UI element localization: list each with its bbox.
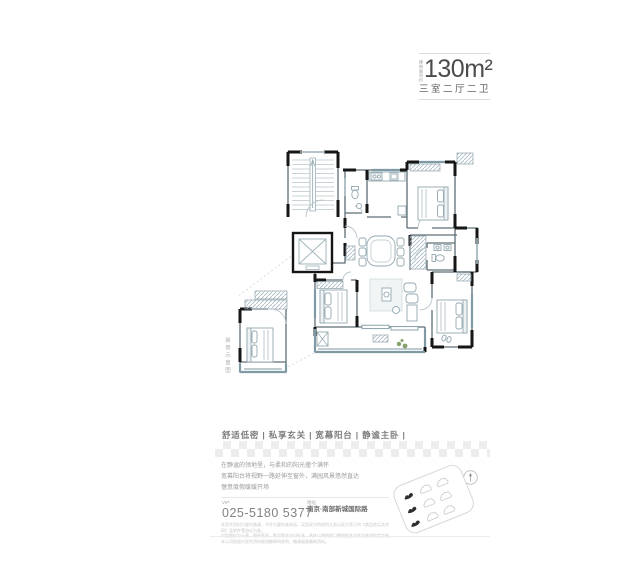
plant-icon xyxy=(397,339,408,348)
living-room-furniture xyxy=(370,279,418,321)
detail-annotation: 装修示意图 xyxy=(223,337,231,381)
toilet-icon xyxy=(432,245,451,262)
bed-icon xyxy=(247,328,273,362)
header-rule-top xyxy=(419,53,490,54)
bed-icon xyxy=(418,187,448,220)
description-line: 宽幕阳台将视野一路延伸至窗外，满园风景悠然直达 xyxy=(221,472,359,483)
slippers-icon xyxy=(441,334,452,343)
rooms-label: 三室二厅二卫 xyxy=(419,81,491,95)
dining-table-icon xyxy=(359,236,404,266)
address-value: 南京·南部新城国际路 xyxy=(307,506,368,514)
furniture xyxy=(247,172,467,362)
disclaimer: 本宣传资料为要约邀请，不作为要约或承诺，买卖双方的权利义务以双方签订的《商品房买… xyxy=(221,522,393,544)
washing-machine-icon xyxy=(317,332,328,346)
elevator xyxy=(293,233,332,272)
toilet-icon xyxy=(352,187,362,209)
poster-page: 建筑面积约 130m² 三室二厅二卫 xyxy=(0,0,625,561)
description-line: 在静谧的领地里，与柔和的阳光撞个满怀 xyxy=(221,461,359,472)
address-block: 地址: 南京·南部新城国际路 xyxy=(307,500,368,514)
area-block: 建筑面积约 130m² xyxy=(419,57,492,83)
area-value: 130m² xyxy=(424,57,492,82)
kitchen-counter-icon xyxy=(369,172,406,215)
bed-icon xyxy=(437,300,467,333)
disclaimer-line: 本公司保留对宣传资料修改解释的权利，敬请留意最新资料。 xyxy=(221,539,393,545)
vip-block: VIP: 025-5180 5377 xyxy=(222,500,313,520)
floor-plan xyxy=(160,148,485,403)
brand-stamp xyxy=(388,464,483,539)
description-block: 在静谧的领地里，与柔和的阳光撞个满怀 宽幕阳台将视野一路延伸至窗外，满园风景悠然… xyxy=(221,461,359,494)
area-prefix-label: 建筑面积约 xyxy=(419,60,423,83)
tagline: 舒适低密 | 私享玄关 | 宽幕阳台 | 静谧主卧 | xyxy=(222,429,406,441)
bed-icon xyxy=(320,290,347,323)
phone-number: 025-5180 5377 xyxy=(222,506,313,520)
contact-rule xyxy=(221,497,389,498)
disclaimer-line: 本宣传资料为要约邀请，不作为要约或承诺，买卖双方的权利义务以双方签订的《商品房买… xyxy=(221,522,393,533)
header-rule-bottom xyxy=(419,99,490,100)
checker-strip xyxy=(215,441,490,457)
description-line: 惬意度假缓缓开场 xyxy=(221,483,359,494)
